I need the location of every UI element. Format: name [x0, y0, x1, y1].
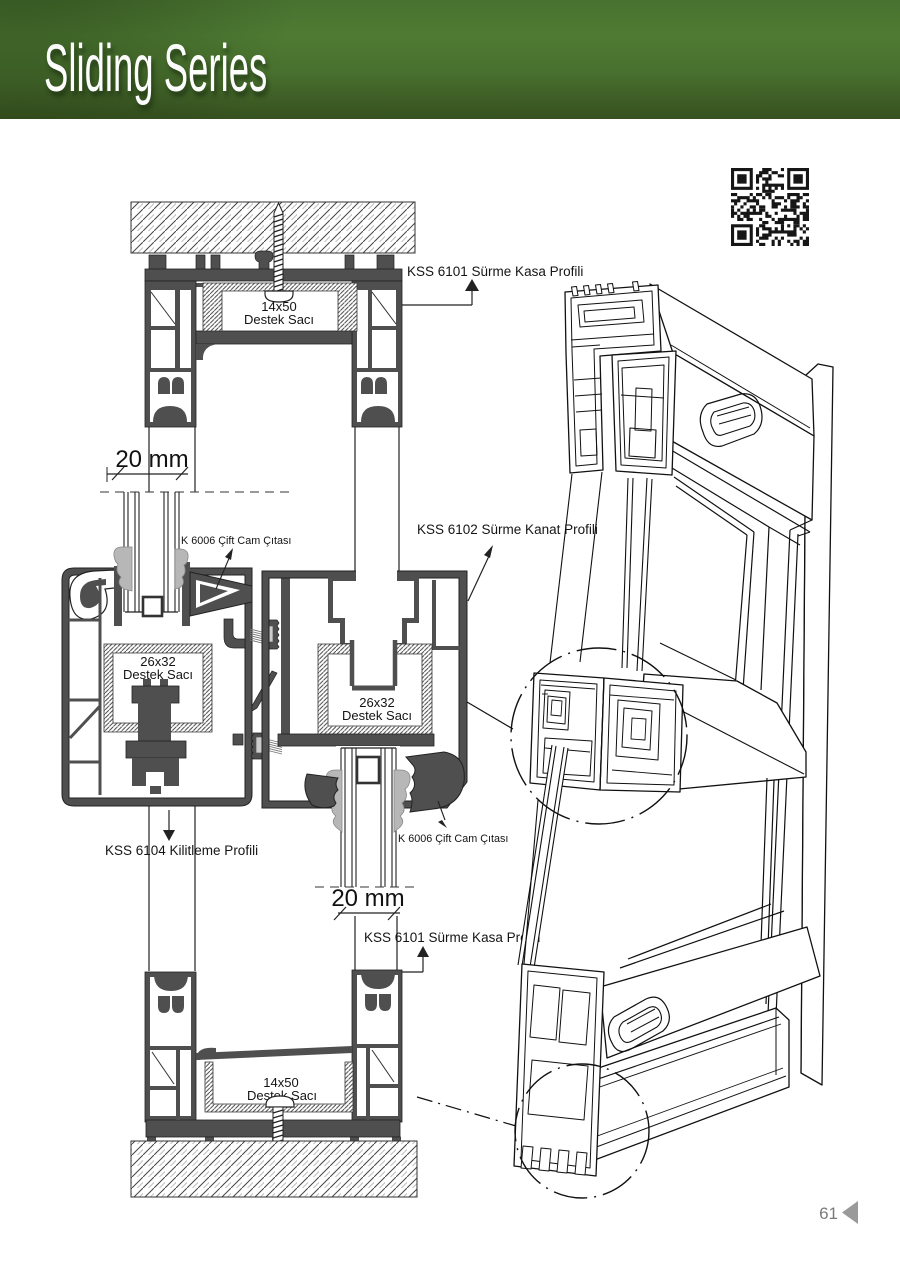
svg-text:Destek Sacı: Destek Sacı — [123, 667, 193, 682]
svg-text:Destek Sacı: Destek Sacı — [342, 708, 412, 723]
svg-text:61: 61 — [819, 1204, 838, 1223]
svg-text:KSS 6102 Sürme Kanat Profili: KSS 6102 Sürme Kanat Profili — [417, 522, 598, 537]
svg-text:20 mm: 20 mm — [331, 885, 404, 912]
svg-text:KSS 6101 Sürme Kasa Profili: KSS 6101 Sürme Kasa Profili — [364, 930, 540, 945]
svg-text:20 mm: 20 mm — [115, 446, 188, 473]
svg-text:K 6006 Çift Cam Çıtası: K 6006 Çift Cam Çıtası — [398, 833, 508, 845]
svg-text:K 6006 Çift Cam Çıtası: K 6006 Çift Cam Çıtası — [181, 535, 291, 547]
svg-text:Destek Sacı: Destek Sacı — [244, 312, 314, 327]
svg-text:KSS 6104 Kilitleme Profili: KSS 6104 Kilitleme Profili — [105, 843, 258, 858]
svg-text:KSS 6101 Sürme Kasa Profili: KSS 6101 Sürme Kasa Profili — [407, 264, 583, 279]
